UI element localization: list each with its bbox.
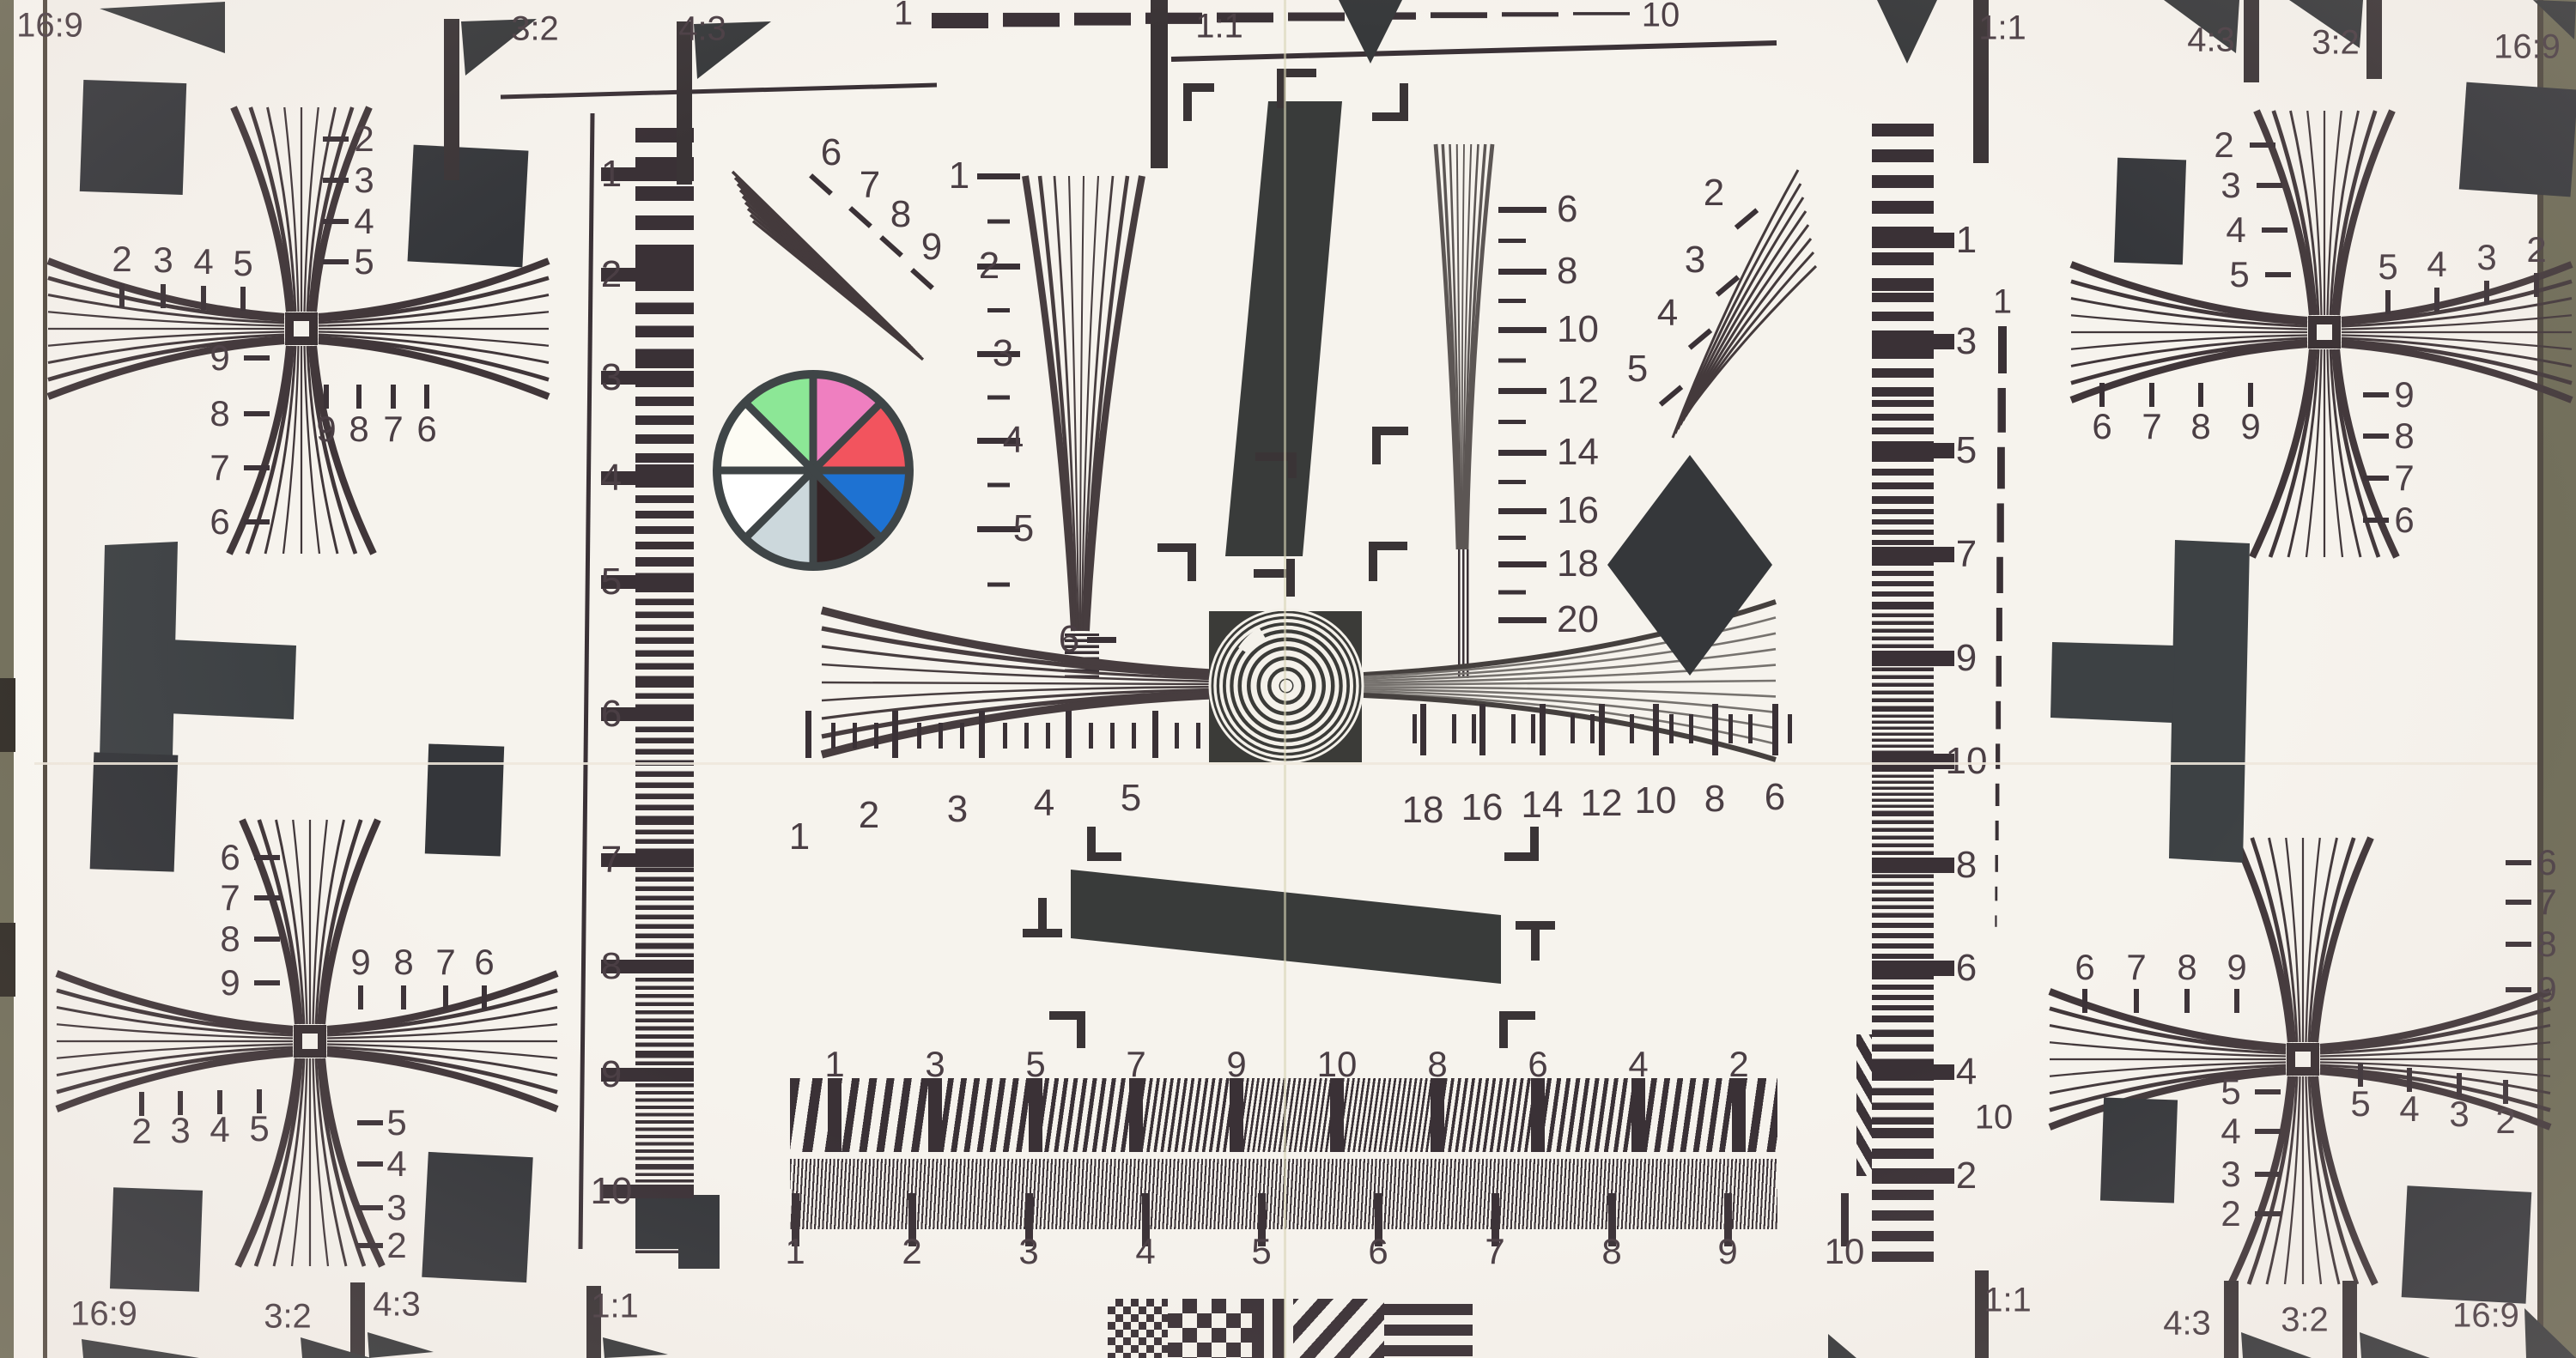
- scale-number: 4: [2221, 1111, 2240, 1152]
- scale-number: 9: [2394, 374, 2414, 415]
- scale-number: 9: [1226, 1044, 1246, 1085]
- scale-number: 1: [949, 155, 969, 197]
- scale-number: 9: [2537, 969, 2556, 1010]
- scale-number: 6: [601, 693, 622, 736]
- scale-number: 10: [1635, 779, 1677, 822]
- scale-number: 7: [220, 877, 240, 918]
- scale-number: 4: [2226, 209, 2245, 251]
- scale-number: 10: [1317, 1044, 1358, 1085]
- scale-number: 7: [1956, 533, 1977, 576]
- scale-number: 5: [1025, 1044, 1045, 1085]
- scale-number: 2: [1728, 1044, 1748, 1085]
- scale-number: 10: [1825, 1231, 1865, 1272]
- scale-number: 4:3: [2163, 1305, 2211, 1343]
- scale-number: 6: [416, 409, 436, 450]
- scale-number: 5: [1121, 777, 1141, 820]
- scale-number: 5: [1956, 429, 1977, 472]
- scale-number: 18: [1557, 543, 1599, 585]
- scale-number: 7: [1485, 1231, 1504, 1272]
- scale-number: 7: [860, 164, 880, 207]
- scale-number: 7: [210, 447, 229, 488]
- scale-number: 3: [354, 160, 374, 201]
- scale-number: 1: [789, 815, 810, 858]
- scale-number: 3: [386, 1187, 406, 1228]
- scale-number: 8: [2394, 415, 2414, 457]
- scale-number: 2: [2214, 124, 2233, 166]
- scale-number: 2: [601, 253, 622, 296]
- scale-number: 8: [349, 409, 368, 450]
- scale-number: 3: [170, 1110, 190, 1151]
- scale-number: 9: [1717, 1231, 1737, 1272]
- scale-number: 1: [1956, 219, 1977, 262]
- scale-number: 6: [1059, 618, 1079, 661]
- center-fold-line-horizontal: [34, 762, 2537, 765]
- scale-number: 1:1: [1978, 9, 2026, 48]
- scale-number: 8: [220, 918, 240, 960]
- scale-number: 5: [233, 243, 252, 284]
- scale-number: 8: [210, 393, 229, 434]
- scale-number: 3: [2449, 1094, 2469, 1135]
- scale-number: 7: [2126, 947, 2146, 988]
- scale-number: 9: [601, 1053, 622, 1096]
- scale-number: 3: [925, 1044, 945, 1085]
- scale-number: 5: [1627, 348, 1648, 391]
- scale-number: 8: [2190, 406, 2210, 447]
- scale-number: 9: [210, 337, 229, 379]
- scale-number: 2: [859, 794, 879, 837]
- scale-number: 6: [474, 942, 494, 983]
- scale-number: 4: [1135, 1231, 1155, 1272]
- scale-number: 1:1: [1984, 1282, 2032, 1320]
- scale-number: 6: [2537, 842, 2556, 883]
- scale-number: 2: [2221, 1193, 2240, 1234]
- scale-number: 9: [220, 962, 240, 1003]
- scale-number: 3:2: [2312, 24, 2360, 63]
- scale-number: 4:3: [373, 1286, 421, 1325]
- scale-number: 16: [1557, 489, 1599, 532]
- scale-number: 3: [993, 332, 1013, 375]
- scale-number: 4: [1628, 1044, 1648, 1085]
- scale-number: 8: [393, 942, 413, 983]
- scale-number: 9: [2240, 406, 2260, 447]
- scale-number: 4: [1003, 419, 1024, 462]
- scale-number: 14: [1522, 784, 1564, 827]
- scale-number: 4: [2427, 244, 2446, 285]
- scale-number: 6: [220, 837, 240, 878]
- scale-number: 2: [112, 239, 131, 280]
- scale-number: 8: [1956, 844, 1977, 887]
- scale-number: 10: [1557, 308, 1599, 351]
- scale-number: 8: [2537, 924, 2556, 965]
- scale-number: 8: [1557, 250, 1577, 293]
- scale-number: 9: [2227, 947, 2246, 988]
- scale-number: 7: [2394, 458, 2414, 499]
- scale-number: 2: [979, 245, 999, 288]
- scale-number: 16:9: [2452, 1297, 2519, 1336]
- scale-number: 10: [591, 1170, 633, 1213]
- scale-number: 2: [1956, 1155, 1977, 1197]
- scale-number: 1:1: [1195, 8, 1243, 46]
- scale-number: 3: [153, 239, 173, 281]
- scale-number: 8: [1601, 1231, 1621, 1272]
- scale-number: 8: [890, 193, 911, 236]
- scale-number: 4:3: [2187, 21, 2235, 60]
- scale-number: 4: [2399, 1088, 2419, 1130]
- scale-number: 6: [1368, 1231, 1388, 1272]
- scale-number: 2: [1704, 172, 1724, 215]
- scale-number: 8: [601, 945, 622, 988]
- scale-number: 5: [354, 241, 374, 282]
- scale-number: 7: [2537, 882, 2556, 923]
- scale-number: 4: [1956, 1051, 1977, 1094]
- scale-number: 18: [1402, 789, 1444, 832]
- scale-number: 4: [210, 1109, 229, 1150]
- scale-number: 6: [821, 131, 841, 174]
- scale-number: 20: [1557, 598, 1599, 641]
- scale-number: 1: [824, 1044, 844, 1085]
- scale-number: 5: [249, 1108, 269, 1149]
- scale-number: 3: [2476, 237, 2496, 278]
- scale-number: 2: [131, 1111, 151, 1152]
- scale-number: 6: [1765, 776, 1785, 819]
- scale-number: 3:2: [2281, 1301, 2329, 1340]
- iso12233-test-chart: 1 10 1 10 16:93:24:31:11:14:33:216:916:9…: [0, 0, 2576, 1358]
- scale-number: 12: [1557, 369, 1599, 412]
- scale-number: 8: [1427, 1044, 1447, 1085]
- scale-number: 5: [2221, 1071, 2240, 1112]
- scale-number: 4: [193, 241, 213, 282]
- scale-number: 7: [435, 942, 455, 983]
- scale-number: 16:9: [16, 7, 83, 45]
- scale-number: 2: [2526, 229, 2546, 270]
- scale-number: 4: [386, 1143, 406, 1185]
- scale-number: 6: [2394, 500, 2414, 541]
- scale-number: 2: [354, 118, 374, 160]
- scale-number: 7: [2142, 406, 2161, 447]
- scale-number: 5: [1013, 507, 1034, 550]
- scale-number: 4:3: [678, 10, 726, 49]
- scale-number: 1: [601, 153, 622, 196]
- scale-number: 6: [210, 501, 229, 543]
- scale-number: 4: [601, 457, 622, 500]
- scale-number: 5: [601, 561, 622, 603]
- scale-number: 3:2: [511, 10, 559, 49]
- scale-number: 9: [316, 409, 336, 450]
- scale-number: 2: [2495, 1100, 2515, 1142]
- scale-number: 5: [1251, 1231, 1271, 1272]
- scale-number: 2: [386, 1225, 406, 1266]
- scale-number: 9: [350, 942, 370, 983]
- scale-number: 7: [601, 839, 622, 882]
- scale-number: 7: [1126, 1044, 1145, 1085]
- scale-number: 3: [1018, 1231, 1038, 1272]
- scale-number: 3: [947, 788, 968, 831]
- scale-number: 3: [2221, 165, 2240, 206]
- scale-number: 3:2: [264, 1298, 312, 1337]
- scale-number: 4: [354, 201, 374, 242]
- scale-number: 8: [2177, 947, 2196, 988]
- scale-number: 6: [2075, 947, 2094, 988]
- center-fold-line-vertical: [1284, 0, 1286, 1358]
- scale-number: 6: [2092, 406, 2111, 447]
- scale-number: 1:1: [591, 1288, 639, 1326]
- scale-number: 12: [1581, 782, 1623, 825]
- scale-number: 1: [785, 1231, 805, 1272]
- scale-number: 8: [1704, 778, 1725, 821]
- scale-number: 7: [383, 409, 403, 450]
- scale-number: 3: [2221, 1154, 2240, 1195]
- scale-number: 3: [1685, 239, 1705, 282]
- scale-number: 5: [2378, 246, 2397, 288]
- scale-number: 4: [1657, 292, 1678, 335]
- scale-number: 5: [2350, 1083, 2370, 1125]
- scale-number: 16:9: [2494, 28, 2561, 67]
- scale-number: 4: [1034, 782, 1054, 825]
- scale-number: 14: [1557, 431, 1599, 474]
- scale-number: 6: [1956, 947, 1977, 990]
- scale-number: 16: [1461, 786, 1504, 829]
- scale-number: 3: [1956, 320, 1977, 363]
- scale-number: 16:9: [70, 1295, 137, 1334]
- scale-number: 2: [902, 1231, 921, 1272]
- scale-number: 5: [2229, 254, 2249, 295]
- scale-number: 9: [1956, 637, 1977, 680]
- scale-number: 10: [1946, 740, 1988, 783]
- scale-number: 5: [386, 1102, 406, 1143]
- scale-number: 6: [1528, 1044, 1547, 1085]
- scale-number: 9: [921, 226, 942, 269]
- scale-number: 6: [1557, 188, 1577, 231]
- scale-number: 3: [601, 356, 622, 399]
